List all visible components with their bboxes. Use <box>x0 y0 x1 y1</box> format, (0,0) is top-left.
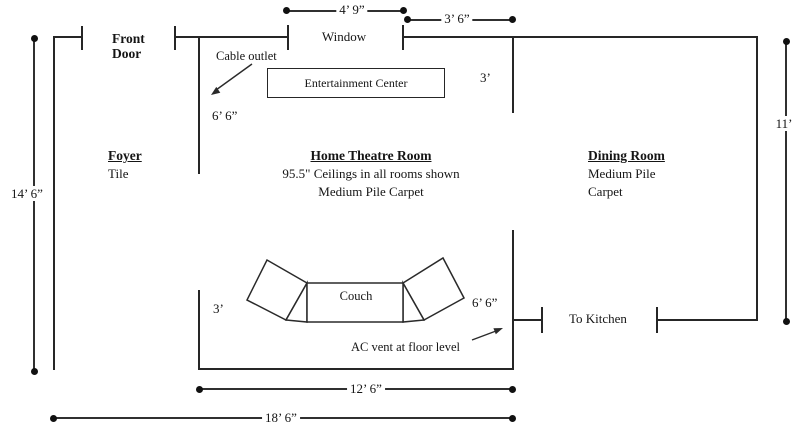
front-door-label-line1: Front <box>112 31 145 46</box>
ac-vent-arrow <box>472 328 503 340</box>
theatre-ceiling-note: 95.5" Ceilings in all rooms shown <box>282 166 459 181</box>
front-door-label: Front Door <box>112 31 145 61</box>
overall-width-dim-label: 18’ 6” <box>262 410 300 425</box>
theatre-left-wall-upper-dim-label: 6’ 6” <box>212 108 237 123</box>
window-offset-dim-label: 3’ 6” <box>441 11 472 26</box>
cable-outlet-arrow <box>211 64 252 95</box>
floor-plan: Entertainment Center Front Door Window 4… <box>0 0 800 436</box>
foyer-title: Foyer <box>108 148 142 163</box>
couch-and-arrows-layer <box>0 0 800 436</box>
theatre-right-wall-upper-dim-label: 3’ <box>480 70 491 85</box>
to-kitchen-label: To Kitchen <box>569 311 627 326</box>
theatre-right-wall-lower-dim-label: 6’ 6” <box>472 295 497 310</box>
couch-label: Couch <box>340 289 373 304</box>
cable-outlet-label: Cable outlet <box>216 49 277 64</box>
front-door-label-line2: Door <box>112 46 145 61</box>
theatre-width-dim-label: 12’ 6” <box>347 381 385 396</box>
ac-vent-label: AC vent at floor level <box>351 340 460 355</box>
window-label: Window <box>319 29 369 44</box>
overall-height-dim-label: 14’ 6” <box>8 186 46 201</box>
entertainment-center-box: Entertainment Center <box>267 68 445 98</box>
dining-floor-label-line1: Medium Pile <box>588 166 656 181</box>
window-width-dim-label: 4’ 9” <box>336 2 367 17</box>
foyer-floor-label: Tile <box>108 166 128 181</box>
dining-height-dim-label: 11’ <box>773 116 796 131</box>
theatre-floor-note: Medium Pile Carpet <box>318 184 423 199</box>
entertainment-center-label: Entertainment Center <box>305 76 408 91</box>
theatre-left-wall-lower-dim-label: 3’ <box>213 301 224 316</box>
dining-floor-label-line2: Carpet <box>588 184 623 199</box>
dining-title: Dining Room <box>588 148 665 163</box>
theatre-title: Home Theatre Room <box>311 148 432 163</box>
